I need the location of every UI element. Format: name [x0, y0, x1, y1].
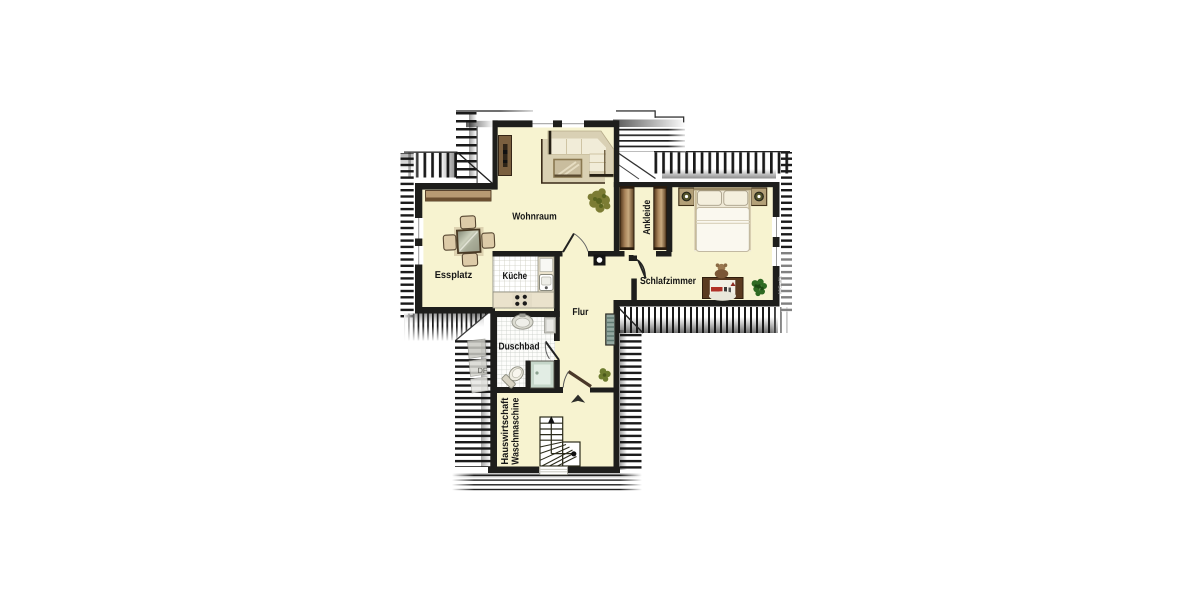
svg-text:Wohnraum: Wohnraum — [512, 212, 557, 223]
svg-text:Küche: Küche — [503, 271, 528, 282]
svg-text:Hauswirtschaft: Hauswirtschaft — [500, 397, 511, 465]
svg-text:MiGrafik: MiGrafik — [778, 275, 784, 293]
svg-text:Duschbad: Duschbad — [499, 341, 540, 352]
svg-text:Waschmaschine: Waschmaschine — [510, 397, 521, 464]
svg-text:DF: DF — [478, 366, 488, 375]
svg-text:Flur: Flur — [572, 307, 588, 318]
svg-text:Schlafzimmer: Schlafzimmer — [640, 276, 696, 287]
svg-text:Essplatz: Essplatz — [435, 270, 473, 281]
svg-text:Ankleide: Ankleide — [642, 199, 653, 234]
